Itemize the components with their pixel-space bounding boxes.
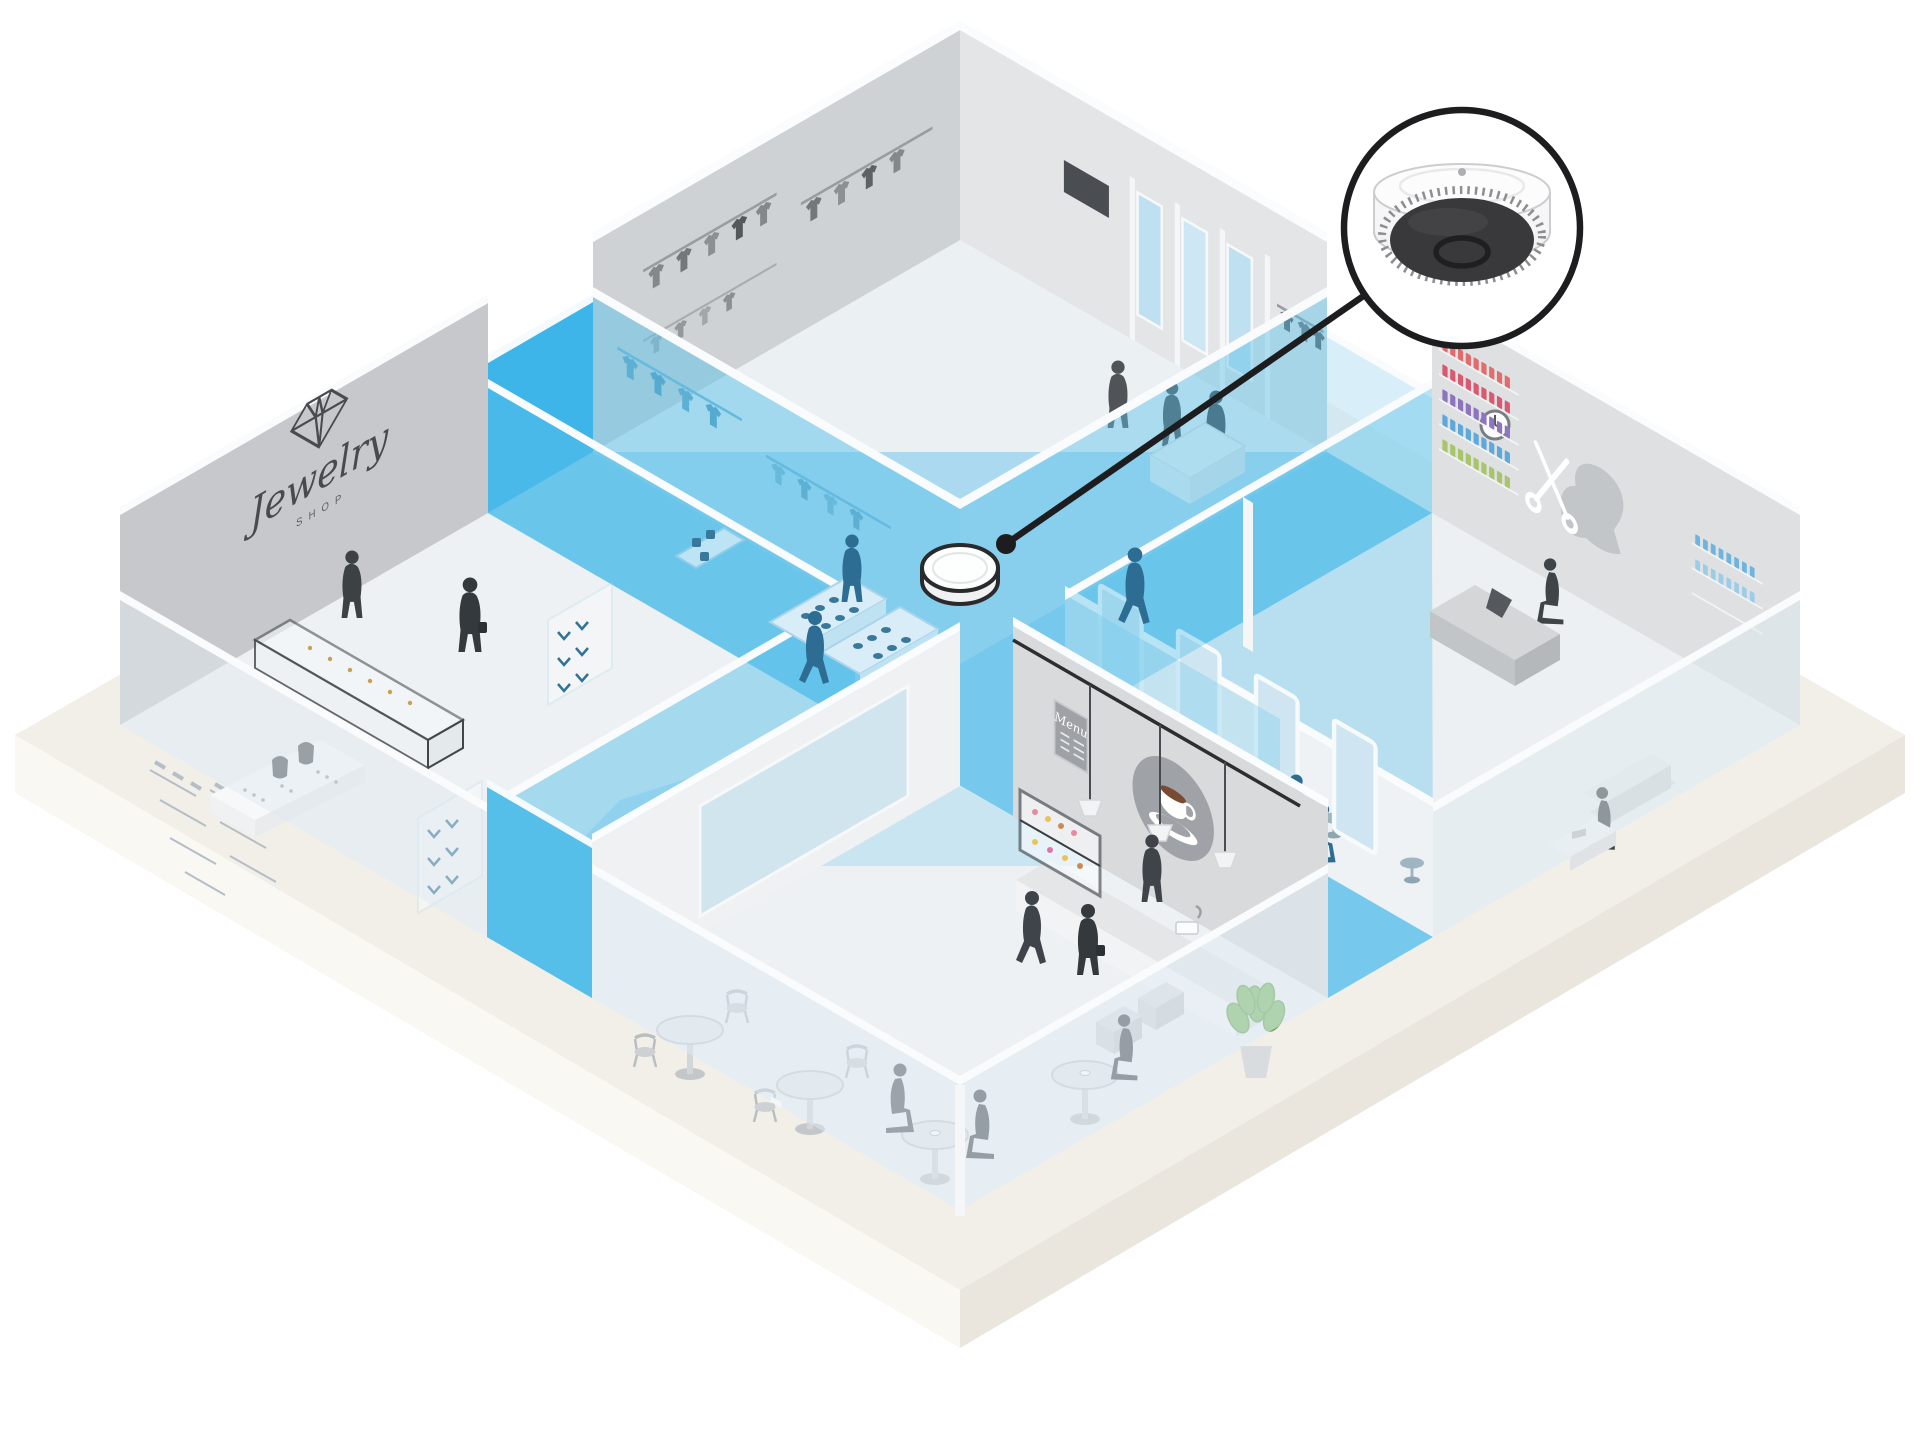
mall-illustration: Jewelry SHOP <box>0 0 1920 1440</box>
ceiling-camera-disc-icon <box>922 545 998 604</box>
isometric-retail-mall-scene: Jewelry SHOP <box>0 0 1920 1440</box>
callout-anchor-dot <box>996 534 1016 554</box>
